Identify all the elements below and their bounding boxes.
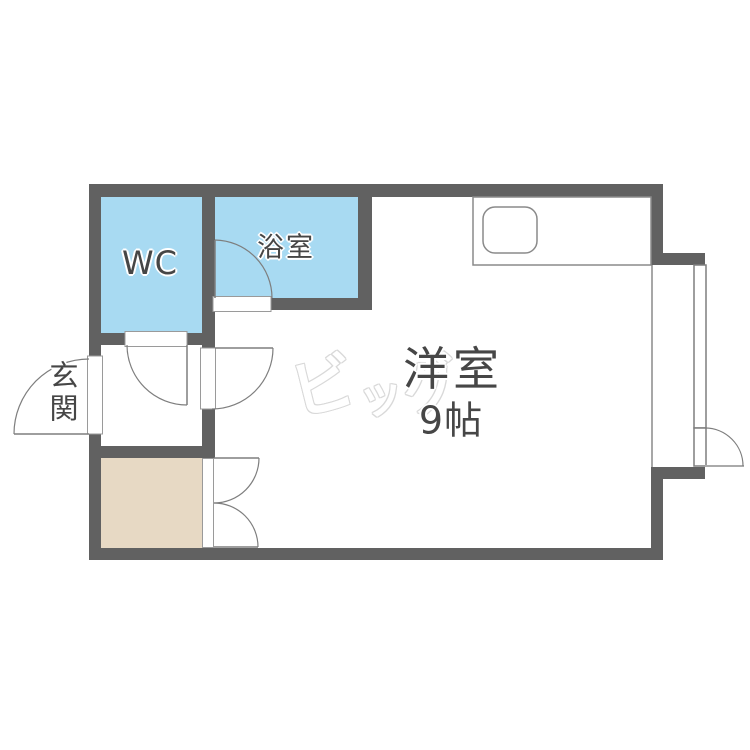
entrance-label: 玄関 — [41, 360, 83, 426]
sink — [483, 207, 537, 253]
floorplan: ビ ッ グ WC 浴室 玄関 洋室 9帖 — [0, 0, 750, 750]
bay-window — [694, 265, 706, 428]
hall-door-opening — [201, 348, 216, 409]
closet-door-frame — [203, 459, 214, 548]
main-room-size: 9帖 — [419, 390, 483, 445]
bathroom-door-opening — [213, 297, 271, 312]
wc-door-arc — [127, 345, 187, 405]
closet-upper-arc — [214, 458, 259, 503]
entrance-opening — [88, 356, 103, 434]
hall-door-arc — [212, 348, 273, 409]
wc-door-opening — [125, 332, 187, 347]
wc-label: WC — [122, 244, 178, 282]
bathroom-label: 浴室 — [257, 226, 315, 265]
bay-door-panel — [694, 428, 706, 466]
closet-lower-arc — [214, 503, 258, 547]
watermark-char: ビ — [280, 330, 364, 435]
bay-door-arc — [705, 428, 743, 466]
